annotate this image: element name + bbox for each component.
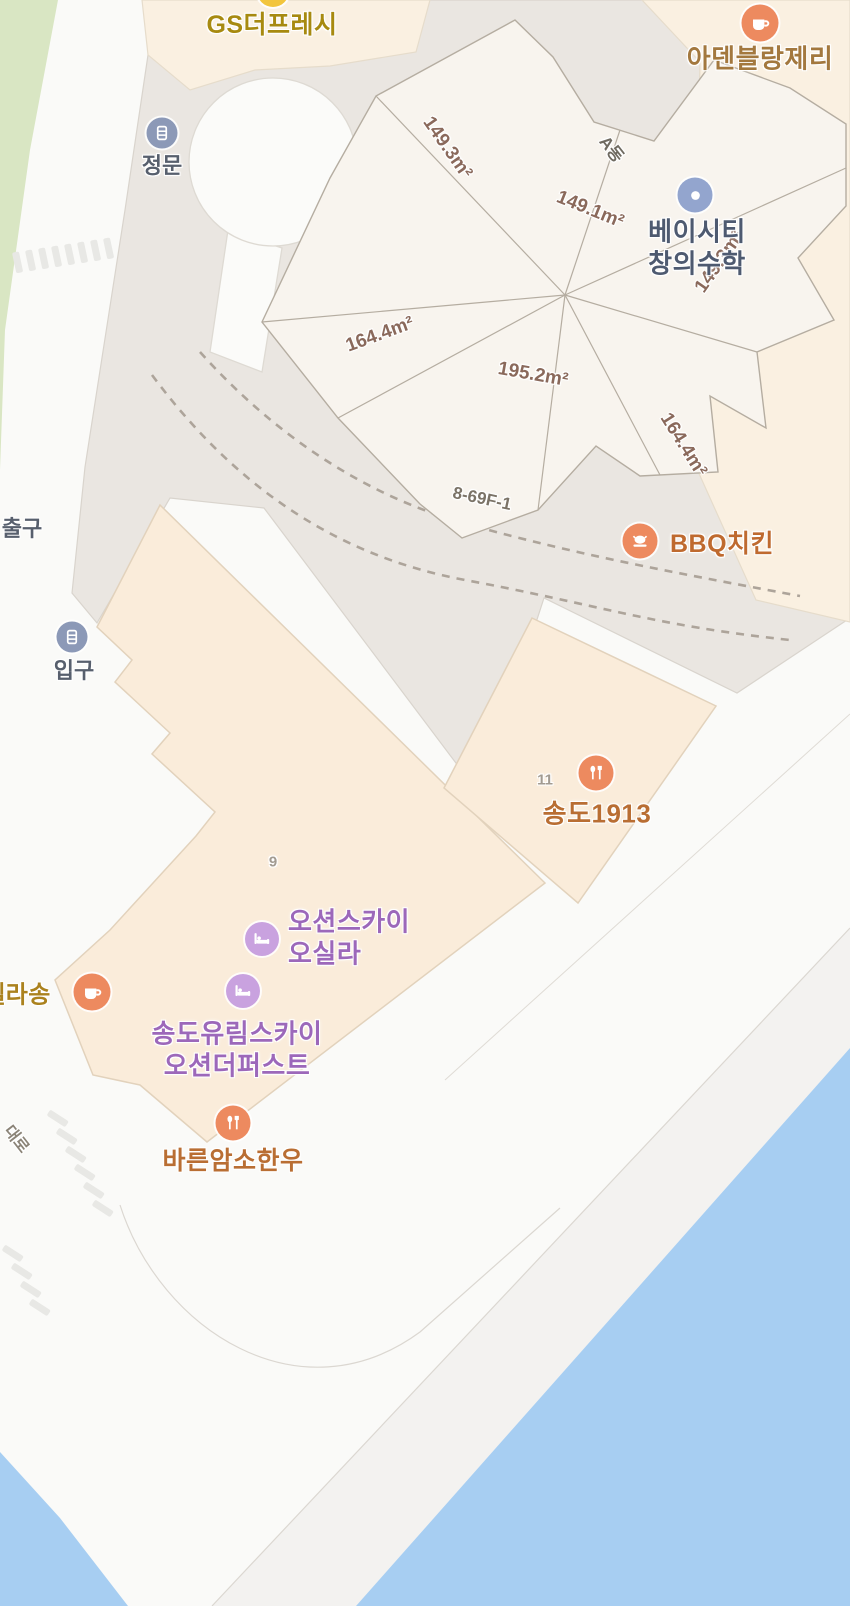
hotel-icon[interactable] [245,922,279,956]
poi-label-line: 오실라 [288,938,410,970]
cafe-icon[interactable] [742,5,779,42]
poi-label-entrance[interactable]: 입구 [54,653,94,685]
academy-icon[interactable] [678,178,713,213]
poi-label-dellasong[interactable]: 델라송 [0,975,51,1010]
hotel-icon[interactable] [226,974,260,1008]
poi-label-yurim-sky[interactable]: 송도유림스카이 오션더퍼스트 [152,1018,323,1081]
poi-label-line: 창의수학 [648,248,746,280]
poi-label-line: 오션스카이 [288,906,410,938]
building-number: 11 [537,772,553,789]
chicken-restaurant-icon[interactable] [623,524,658,559]
poi-label-songdo1913[interactable]: 송도1913 [543,794,652,831]
poi-label-oceansky-osilla[interactable]: 오션스카이 오실라 [288,906,410,969]
poi-label-gs-the-fresh[interactable]: GS더프레시 [206,5,337,41]
building-number: 9 [269,854,277,871]
poi-label-aden-boulangerie[interactable]: 아덴블랑제리 [687,39,834,76]
poi-label-baycity-math[interactable]: 베이시티 창의수학 [648,216,746,279]
restaurant-icon[interactable] [579,756,614,791]
poi-label-exit[interactable]: 출구 [2,511,42,543]
map-canvas[interactable]: 149.3m² 149.1m² 149.3m² 164.4m² 195.2m² … [0,0,850,1606]
poi-label-line: 오션더퍼스트 [152,1050,323,1082]
cafe-icon[interactable] [74,974,111,1011]
poi-label-bareun-hanwoo[interactable]: 바른암소한우 [162,1141,303,1177]
restaurant-icon[interactable] [216,1106,251,1141]
poi-label-bbq-chicken[interactable]: BBQ치킨 [670,524,774,560]
entrance-gate-icon[interactable] [57,622,88,653]
poi-label-line: 송도유림스카이 [152,1018,323,1050]
poi-label-main-gate[interactable]: 정문 [142,148,182,180]
main-gate-icon[interactable] [147,118,178,149]
poi-label-line: 베이시티 [648,216,746,248]
